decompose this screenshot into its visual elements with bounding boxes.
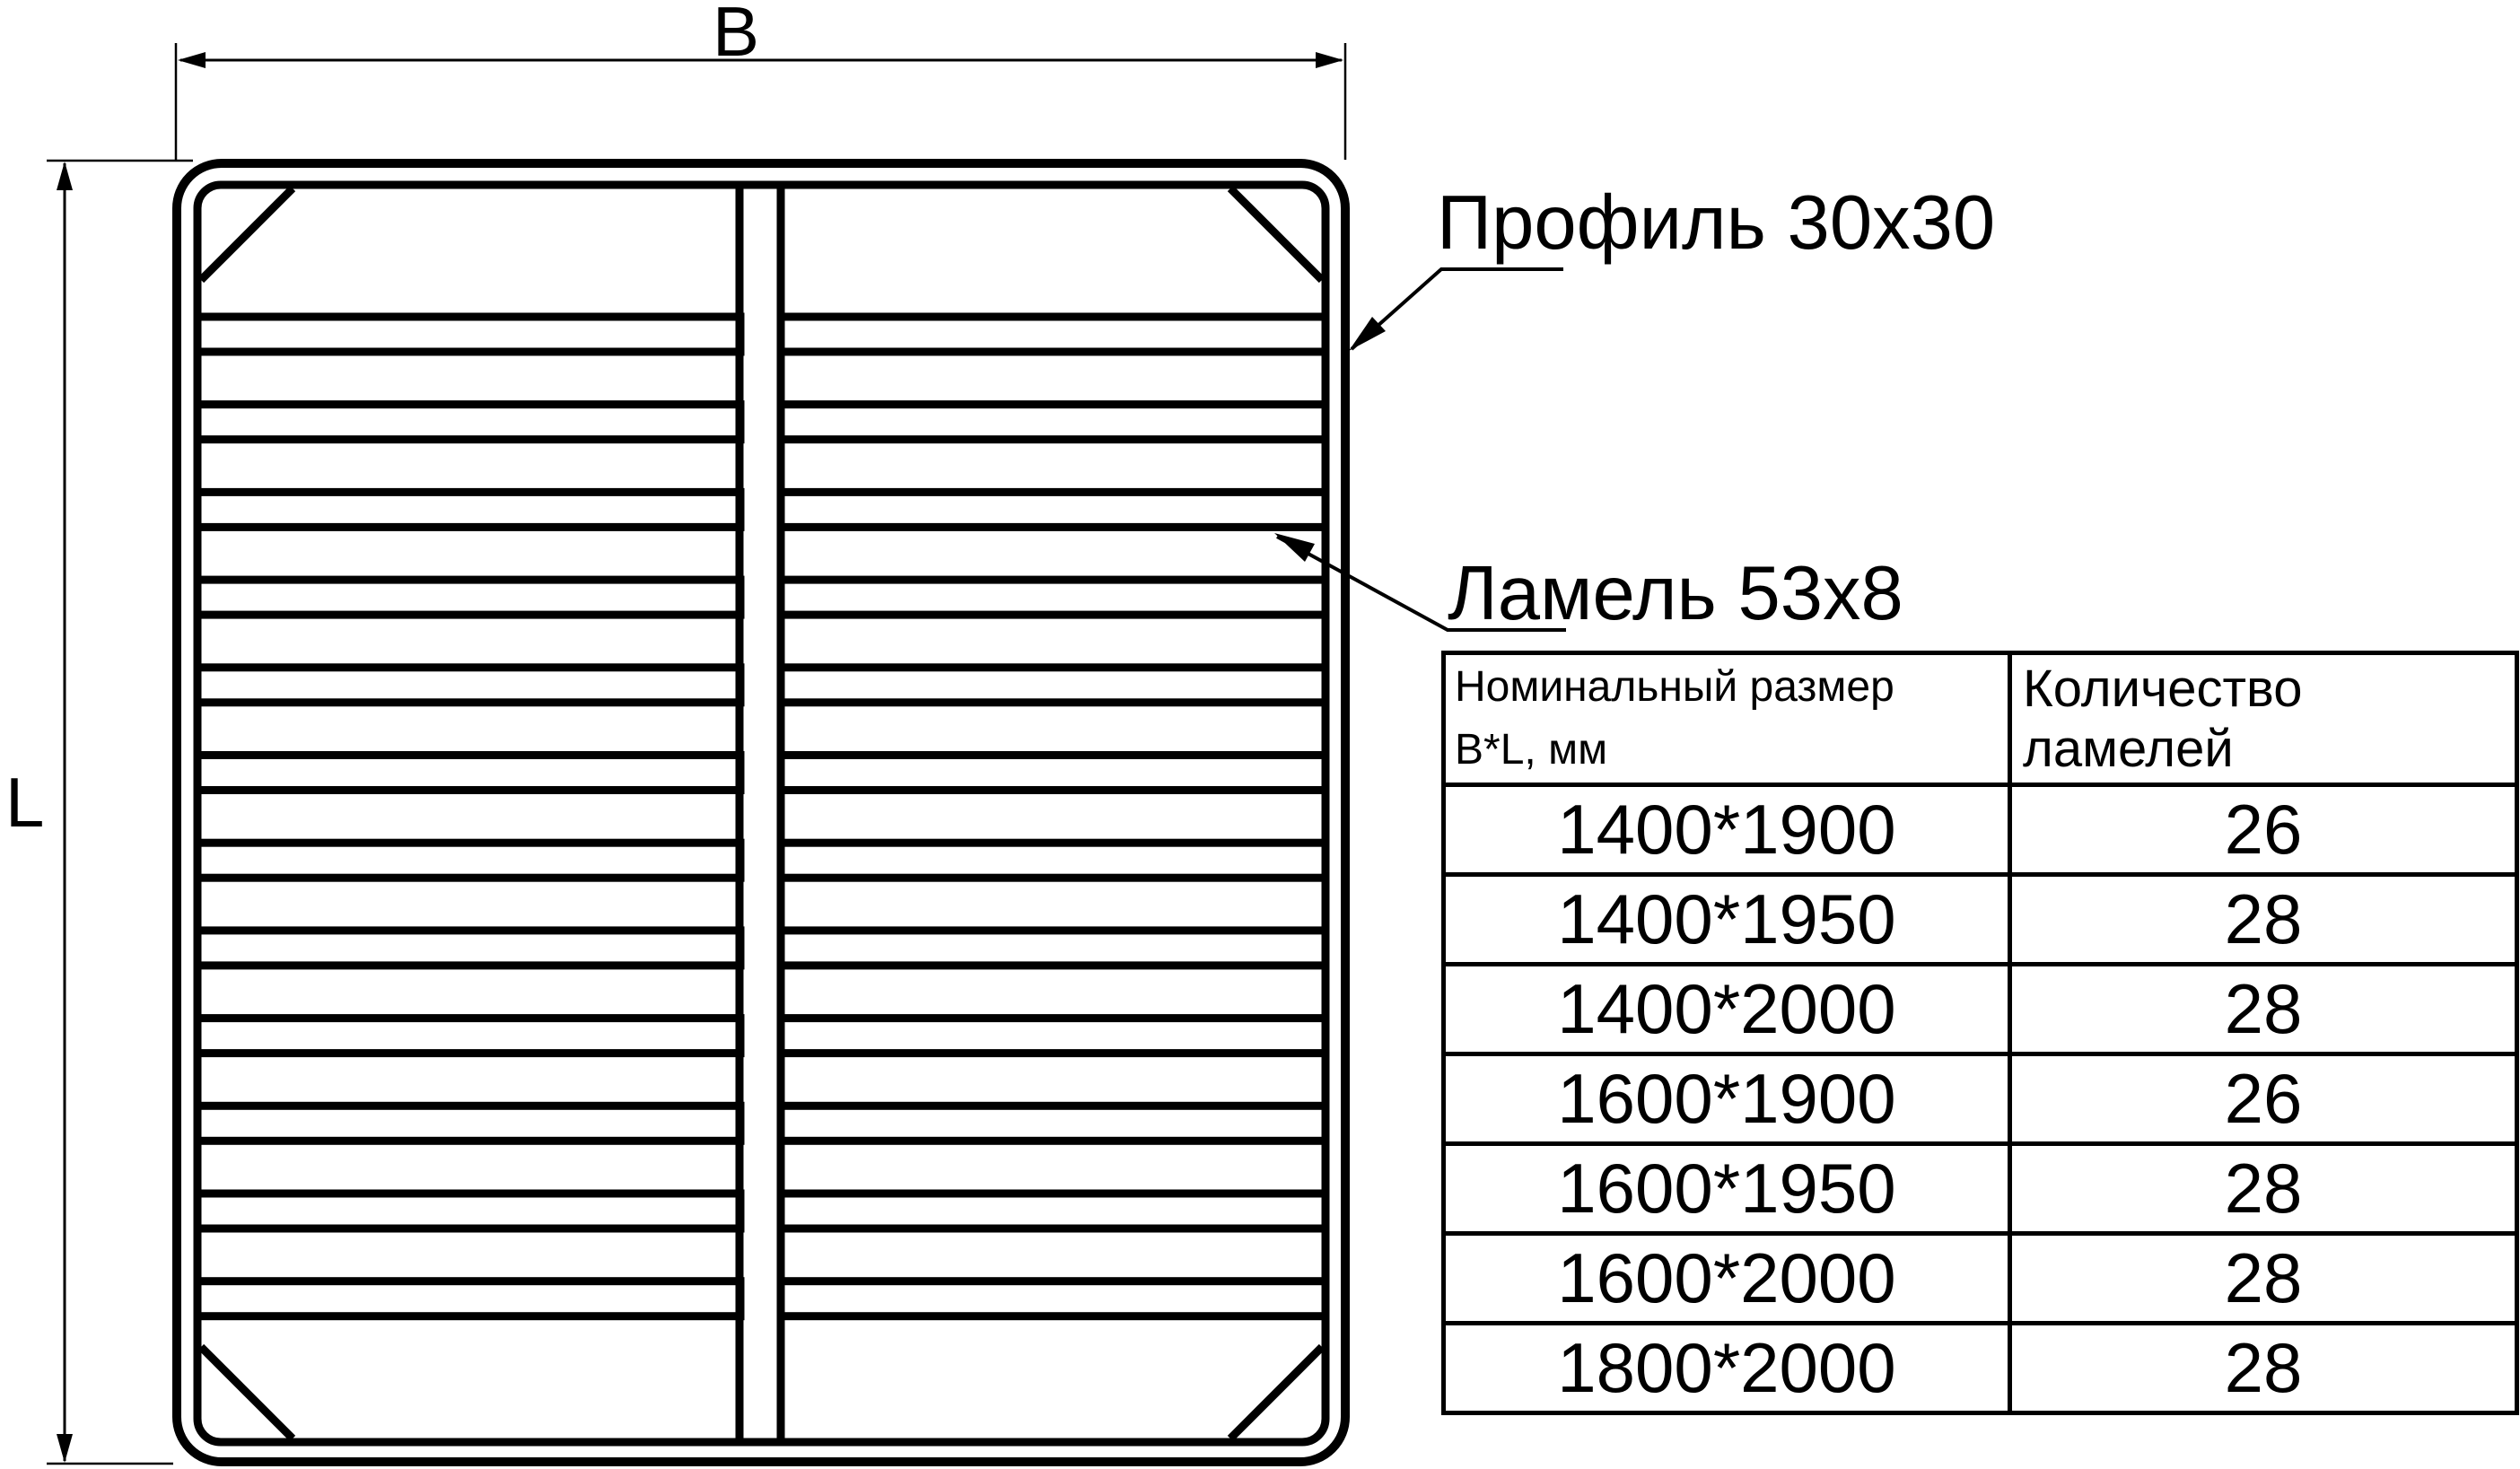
quantity-cell: 26	[2010, 1054, 2517, 1144]
callout-profile: Профиль 30x30	[1349, 180, 1995, 351]
quantity-cell: 28	[2010, 875, 2517, 965]
table-row: 1400*2000 28	[1444, 965, 2517, 1054]
size-cell: 1800*2000	[1444, 1324, 2010, 1413]
corner-brace-top-right	[1230, 188, 1322, 280]
size-table: Номинальный размер B*L, мм Количество ла…	[1441, 651, 2519, 1415]
slat-row	[197, 492, 1326, 527]
arrowhead-right	[1316, 52, 1343, 68]
table-row: 1400*1900 26	[1444, 785, 2517, 875]
table-row: 1600*1950 28	[1444, 1144, 2517, 1234]
size-cell: 1600*2000	[1444, 1234, 2010, 1324]
profile-callout-label: Профиль 30x30	[1437, 180, 1995, 266]
frame-outer-profile	[177, 163, 1345, 1462]
slat-row	[197, 1194, 1326, 1229]
quantity-cell: 28	[2010, 1144, 2517, 1234]
corner-braces	[201, 188, 1322, 1438]
corner-brace-bottom-left	[201, 1347, 293, 1438]
dimension-label-L: L	[5, 763, 44, 842]
quantity-cell: 28	[2010, 965, 2517, 1054]
dimension-label-B: B	[713, 0, 759, 71]
leader-arrowhead	[1274, 533, 1315, 562]
slat-row	[197, 1019, 1326, 1054]
lamel-callout-label: Ламель 53x8	[1448, 551, 1903, 636]
header-size-line1: Номинальный размер	[1455, 656, 2007, 719]
table-row: 1600*1900 26	[1444, 1054, 2517, 1144]
slats	[197, 317, 1326, 1316]
dimension-B: B	[176, 0, 1345, 160]
slat-row	[197, 1106, 1326, 1141]
size-cell: 1400*2000	[1444, 965, 2010, 1054]
corner-brace-top-left	[201, 188, 293, 280]
callout-lamel: Ламель 53x8	[1274, 533, 1903, 636]
slat-row	[197, 843, 1326, 878]
arrowhead-bottom	[57, 1434, 73, 1463]
size-cell: 1400*1950	[1444, 875, 2010, 965]
quantity-cell: 28	[2010, 1324, 2517, 1413]
arrowhead-top	[57, 162, 73, 190]
header-lamel-quantity: Количество ламелей	[2010, 653, 2517, 785]
slat-row	[197, 931, 1326, 966]
technical-drawing-page: B L Профиль 30x30 Ламель 53x8	[0, 0, 2520, 1469]
leader-line	[1352, 269, 1563, 349]
slat-row	[197, 756, 1326, 791]
table-row: 1800*2000 28	[1444, 1324, 2517, 1413]
slat-row	[197, 1281, 1326, 1316]
header-nominal-size: Номинальный размер B*L, мм	[1444, 653, 2010, 785]
size-cell: 1400*1900	[1444, 785, 2010, 875]
quantity-cell: 26	[2010, 785, 2517, 875]
frame-inner-profile	[197, 185, 1326, 1442]
corner-brace-bottom-right	[1230, 1347, 1322, 1438]
dimension-L: L	[5, 161, 193, 1464]
size-table-container: Номинальный размер B*L, мм Количество ла…	[1441, 651, 2519, 1415]
table-header-row: Номинальный размер B*L, мм Количество ла…	[1444, 653, 2517, 785]
size-cell: 1600*1900	[1444, 1054, 2010, 1144]
arrowhead-left	[178, 52, 206, 68]
center-beam	[739, 188, 781, 1438]
table-row: 1400*1950 28	[1444, 875, 2517, 965]
size-cell: 1600*1950	[1444, 1144, 2010, 1234]
slat-row	[197, 580, 1326, 615]
table-row: 1600*2000 28	[1444, 1234, 2517, 1324]
slat-row	[197, 668, 1326, 703]
slat-row	[197, 317, 1326, 352]
header-size-line2: B*L, мм	[1455, 719, 2007, 782]
slat-row	[197, 405, 1326, 440]
quantity-cell: 28	[2010, 1234, 2517, 1324]
